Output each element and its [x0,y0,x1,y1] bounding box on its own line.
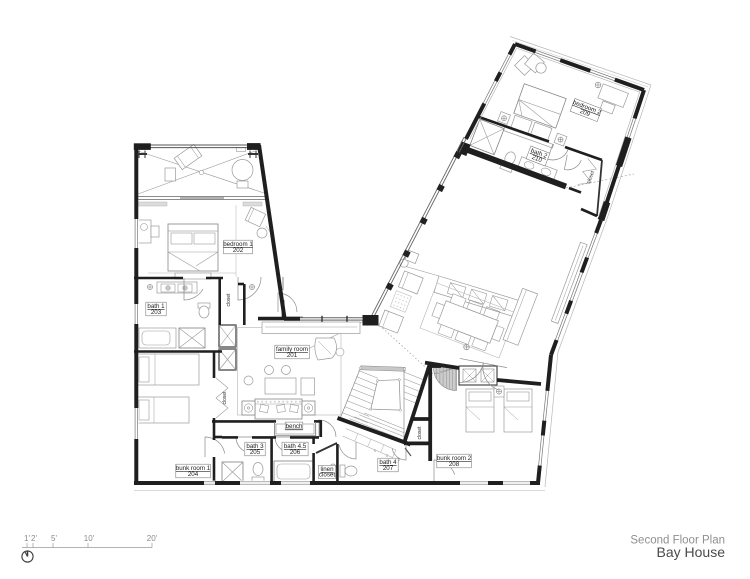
svg-text:206: 206 [290,449,301,456]
svg-text:bench: bench [286,423,303,430]
svg-text:closet: closet [222,391,228,405]
svg-text:2': 2' [31,534,37,543]
svg-text:208: 208 [449,461,460,468]
svg-text:201: 201 [287,352,298,359]
svg-text:closet: closet [319,472,335,479]
svg-text:203: 203 [151,309,162,316]
svg-text:207: 207 [383,465,394,472]
svg-text:20': 20' [147,534,158,543]
svg-text:204: 204 [188,471,199,478]
svg-text:10': 10' [84,534,95,543]
svg-text:1': 1' [24,534,30,543]
svg-text:closet: closet [226,293,232,307]
svg-text:205: 205 [250,449,261,456]
svg-text:5': 5' [51,534,57,543]
svg-text:Bay House: Bay House [657,544,726,560]
svg-text:closet: closet [417,426,423,440]
svg-text:202: 202 [233,247,244,254]
